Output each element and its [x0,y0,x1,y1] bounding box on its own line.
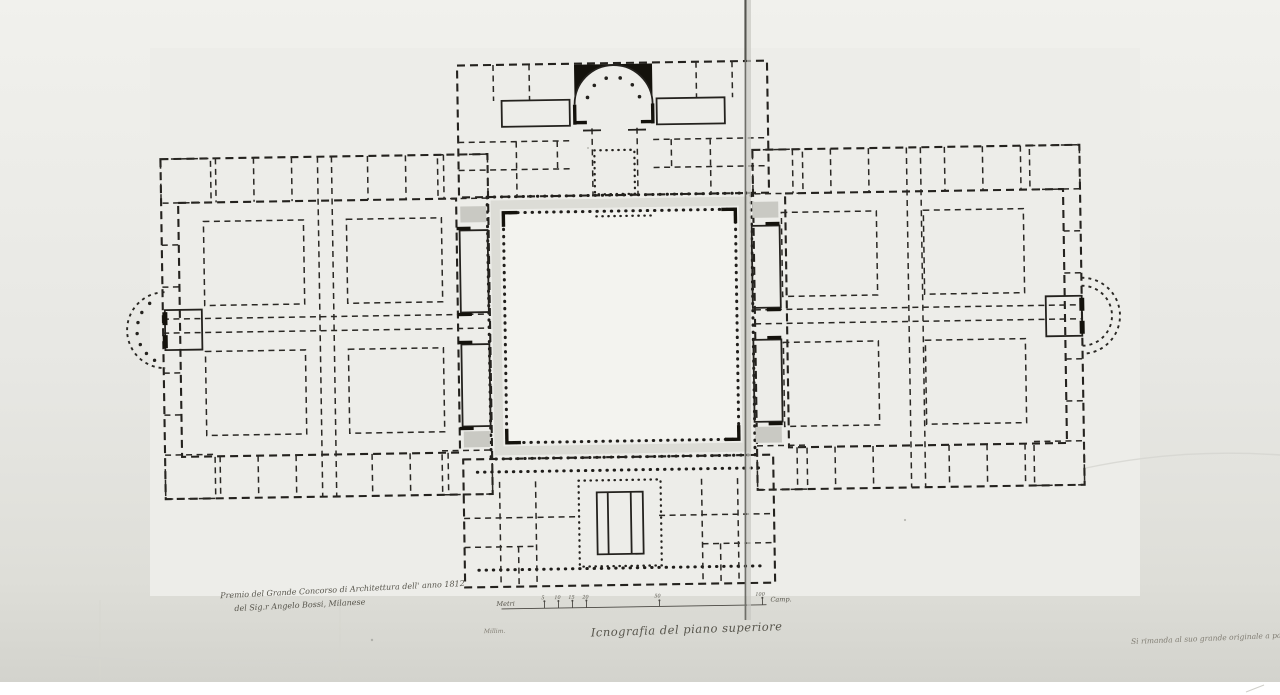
central-courtyard [487,193,755,459]
mount-white-strip [0,682,1280,695]
fold-crease [746,0,752,620]
photograph-of-architectural-drawing: Metri 5 10 15 20 50 100 Camp. Premio del… [0,0,1280,695]
scale-end-unit-label: Camp. [770,595,791,603]
scale-tick-5: 5 [541,595,544,601]
floor-plan-svg: Metri 5 10 15 20 50 100 Camp. Premio del… [0,0,1280,695]
scale-tick-15: 15 [568,595,574,601]
scale-tick-20: 20 [581,595,589,601]
scale-tick-mid: 50 [654,593,661,599]
scale-unit-label: Metri [495,600,514,608]
scale-tick-10: 10 [554,595,561,601]
scale-tick-end: 100 [755,592,765,598]
margin-note: Millim. [483,628,506,635]
